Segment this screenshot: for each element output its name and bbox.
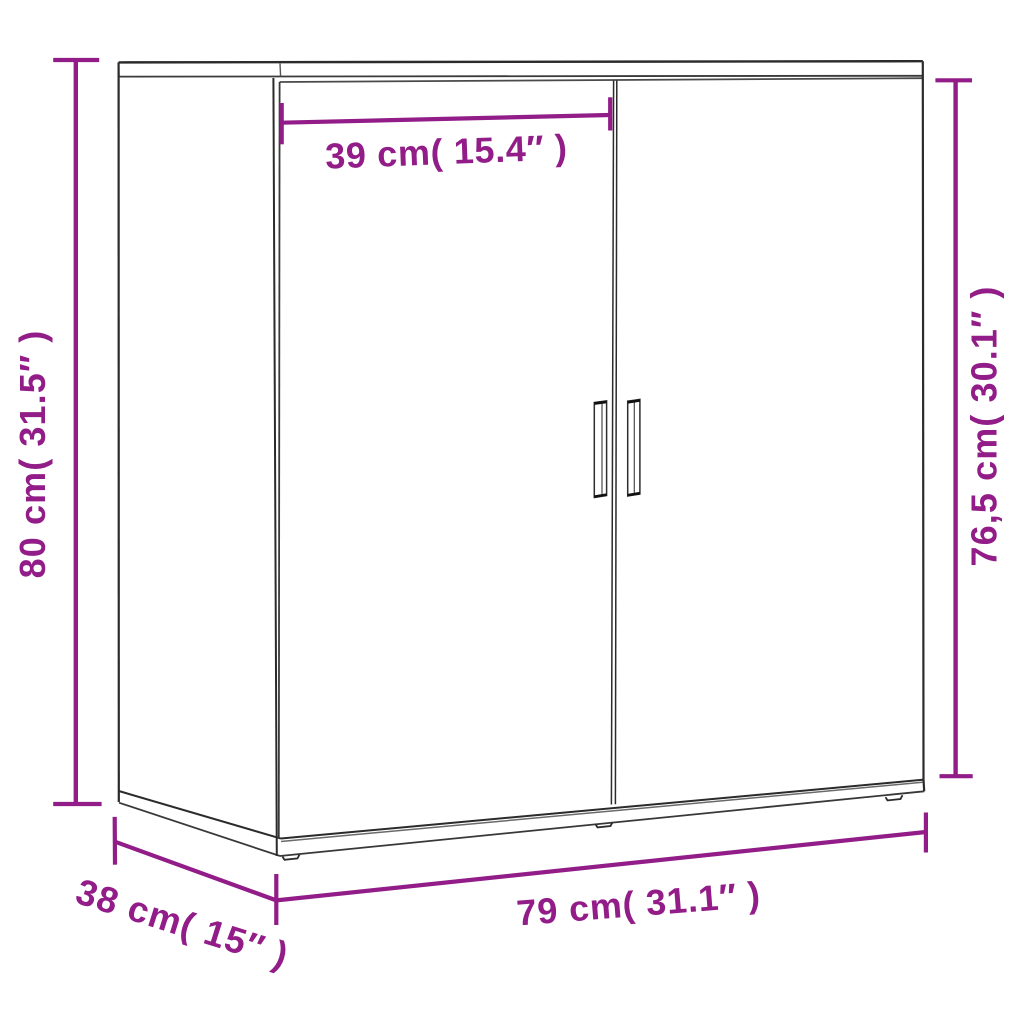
svg-text:80 cm( 31.5″ ): 80 cm( 31.5″ ): [12, 330, 53, 579]
svg-text:76,5 cm( 30.1″ ): 76,5 cm( 30.1″ ): [964, 286, 1005, 567]
